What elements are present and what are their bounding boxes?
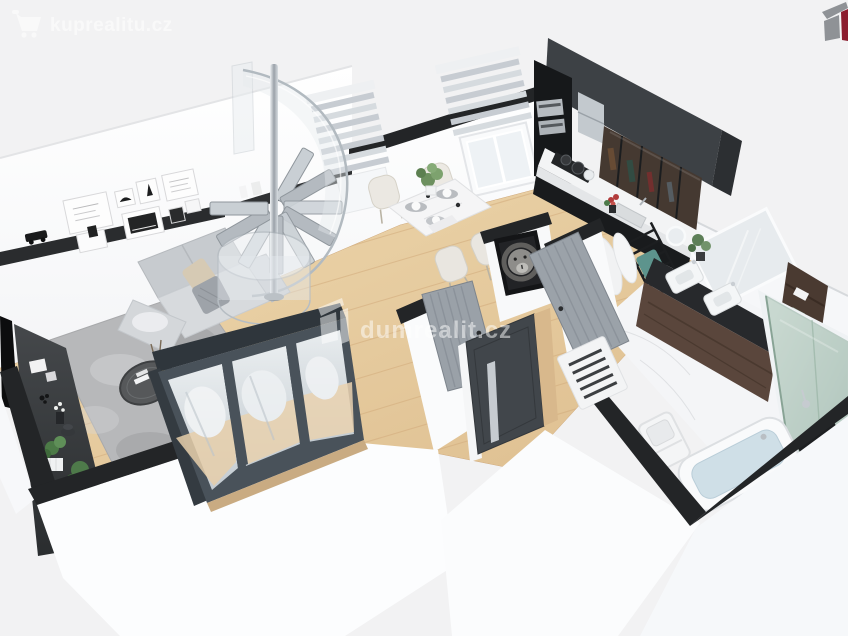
watermark-dumrealit: dumrealit.cz [360,317,512,344]
throw-blanket [132,312,168,332]
white-pot [584,170,594,180]
round-mirror [667,227,685,245]
pot [572,162,584,174]
pot [561,155,571,165]
watermark-kuprealitu: kuprealitu.cz [50,15,173,36]
corner-logo-maroon-bar [841,9,848,41]
floor-plan-render: kuprealitu.cz dumrealit.cz [0,0,848,636]
